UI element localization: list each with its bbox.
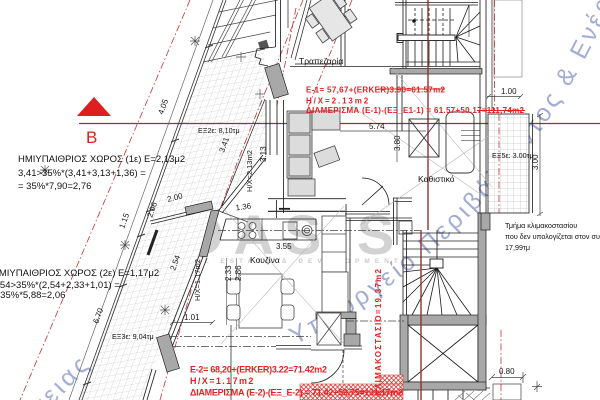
- svg-text:B: B: [86, 128, 97, 147]
- svg-text:ΔΙΑΜΕΡΙΣΜΑ (Ε-2)-(ΕΞ_Ε-2) = 71: ΔΙΑΜΕΡΙΣΜΑ (Ε-2)-(ΕΞ_Ε-2) = 71.42+59,75=…: [190, 388, 403, 398]
- svg-text:= 35%*7,90=2,76: = 35%*7,90=2,76: [18, 181, 91, 192]
- svg-text:Κουζίνα: Κουζίνα: [250, 255, 280, 265]
- svg-text:1.00: 1.00: [501, 87, 517, 96]
- svg-text:Η/Χ=2.13m2: Η/Χ=2.13m2: [306, 97, 370, 106]
- svg-text:Η/Χ=1.17m2: Η/Χ=1.17m2: [190, 376, 255, 386]
- svg-text:Ε-1= 57,67+(ERKER)3.90=61.57m2: Ε-1= 57,67+(ERKER)3.90=61.57m2: [306, 86, 446, 95]
- svg-text:1.01: 1.01: [184, 313, 200, 322]
- svg-text:Τμήμα κλιμακοστασίου: Τμήμα κλιμακοστασίου: [505, 221, 577, 230]
- svg-text:3.55: 3.55: [276, 242, 292, 251]
- svg-text:2.86: 2.86: [234, 265, 243, 281]
- svg-text:Τραπεζαρία: Τραπεζαρία: [299, 56, 343, 66]
- svg-text:3.80: 3.80: [393, 135, 402, 151]
- svg-text:REAL ESTATE & DEVELOPMENT: REAL ESTATE & DEVELOPMENT: [176, 258, 403, 265]
- svg-text:= 35%*5,88=2,06: = 35%*5,88=2,06: [0, 290, 65, 301]
- svg-text:Καθιστικό: Καθιστικό: [418, 174, 455, 184]
- svg-text:H/X=1.17m2: H/X=1.17m2: [193, 259, 202, 301]
- svg-text:0.80: 0.80: [499, 367, 515, 376]
- svg-text:ΗΜΙΥΠΑΙΘΡΙΟΣ ΧΩΡΟΣ (1ε) Ε=2,1: ΗΜΙΥΠΑΙΘΡΙΟΣ ΧΩΡΟΣ (1ε) Ε=2,13μ2: [18, 154, 185, 165]
- svg-text:5.74: 5.74: [369, 122, 385, 131]
- svg-text:2.33: 2.33: [224, 265, 233, 281]
- svg-text:ΕΞ2ε: 8,10τμ: ΕΞ2ε: 8,10τμ: [198, 126, 240, 135]
- svg-text:3,41>35%*(3,41+3,13+1,36) =: 3,41>35%*(3,41+3,13+1,36) =: [18, 168, 146, 179]
- svg-text:17,99τμ: 17,99τμ: [505, 243, 530, 252]
- svg-text:που δεν υπολογίζεται στον συ: που δεν υπολογίζεται στον συ: [505, 232, 600, 241]
- svg-text:Ε-2= 68,20+(ERKER)3.22=71.42m2: Ε-2= 68,20+(ERKER)3.22=71.42m2: [190, 365, 327, 375]
- svg-text:H/X=2.13m2: H/X=2.13m2: [245, 150, 254, 192]
- svg-text:3.13: 3.13: [259, 146, 268, 162]
- svg-text:ΕΞ5ε: 3.00τμ: ΕΞ5ε: 3.00τμ: [492, 151, 534, 160]
- svg-text:ΕΞ3ε: 9,04τμ: ΕΞ3ε: 9,04τμ: [112, 332, 154, 341]
- svg-text:ΗΜΙΥΠΑΙΘΡΙΟΣ ΧΩΡΟΣ (2ε) Ε=1,1: ΗΜΙΥΠΑΙΘΡΙΟΣ ΧΩΡΟΣ (2ε) Ε=1,17μ2: [0, 268, 159, 279]
